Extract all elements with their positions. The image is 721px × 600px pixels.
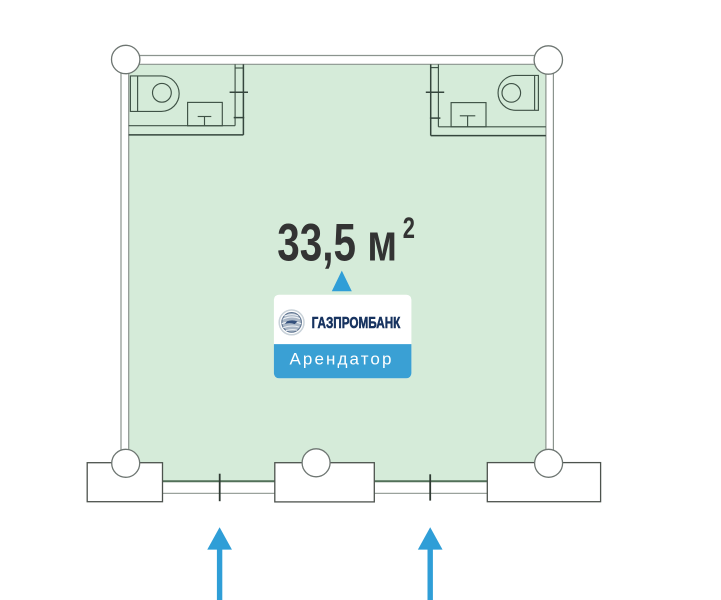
svg-text:Арендатор: Арендатор — [289, 350, 393, 369]
svg-text:ГАЗПРОМБАНК: ГАЗПРОМБАНК — [312, 313, 401, 331]
svg-text:33,5 м: 33,5 м — [277, 213, 397, 271]
svg-text:2: 2 — [403, 210, 415, 244]
